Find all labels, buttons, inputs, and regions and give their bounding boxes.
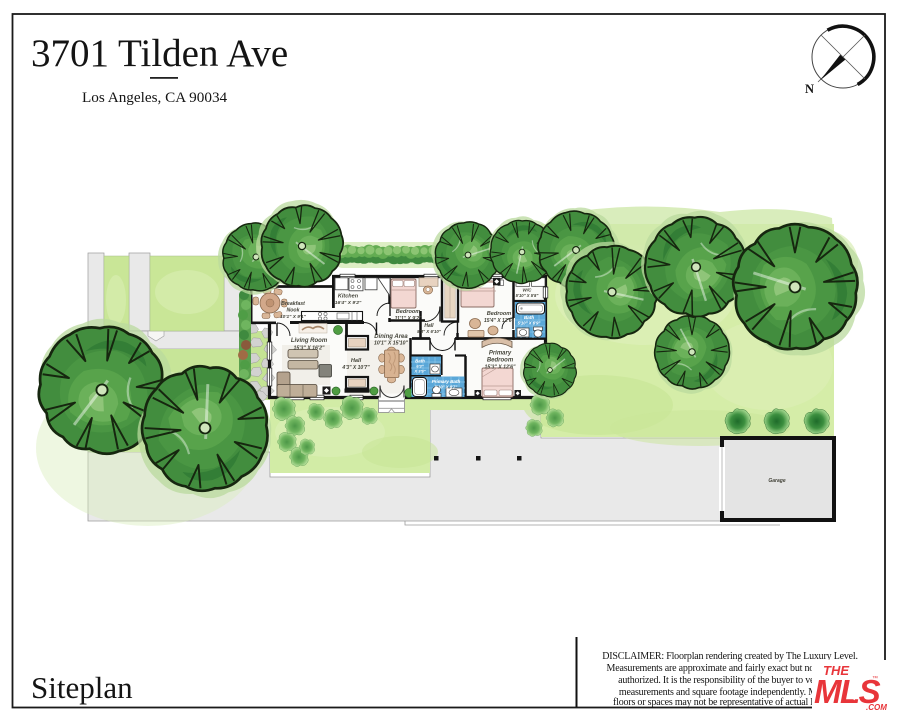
svg-text:Primary Bath: Primary Bath: [432, 379, 461, 384]
svg-text:4'3" X 10'7": 4'3" X 10'7": [341, 365, 370, 371]
svg-text:Nook: Nook: [287, 308, 301, 314]
svg-text:W/C: W/C: [523, 288, 533, 293]
svg-text:Dining Area: Dining Area: [374, 334, 408, 340]
svg-text:Living Room: Living Room: [291, 338, 328, 344]
svg-text:5'10" X 6'9": 5'10" X 6'9": [518, 321, 542, 326]
svg-text:Hall: Hall: [351, 358, 362, 364]
svg-text:™: ™: [872, 675, 878, 682]
svg-text:Primary: Primary: [489, 351, 512, 357]
svg-text:.COM: .COM: [866, 703, 887, 712]
svg-text:5'3" X 6'10": 5'3" X 6'10": [417, 329, 442, 334]
svg-text:floors or spaces may not be re: floors or spaces may not be representati…: [613, 697, 847, 708]
svg-text:Bedroom: Bedroom: [487, 311, 512, 317]
svg-text:3701 Tilden Ave: 3701 Tilden Ave: [31, 32, 288, 75]
svg-text:9'10" X 8'7": 9'10" X 8'7": [435, 385, 459, 390]
svg-text:11'1" X 9'2": 11'1" X 9'2": [395, 316, 422, 322]
svg-text:Los Angeles, CA 90034: Los Angeles, CA 90034: [82, 89, 228, 106]
svg-text:10'1" X 15'10": 10'1" X 15'10": [374, 341, 408, 347]
svg-text:Breakfast: Breakfast: [281, 301, 305, 307]
svg-text:authorized. It is the responsi: authorized. It is the responsibility of …: [618, 675, 842, 686]
svg-text:Bath: Bath: [524, 315, 534, 320]
svg-text:10'1" X 9'1": 10'1" X 9'1": [280, 314, 307, 320]
svg-text:Bedroom: Bedroom: [396, 309, 421, 315]
svg-text:15'4" X 12'6": 15'4" X 12'6": [484, 318, 515, 324]
svg-text:Kitchen: Kitchen: [338, 294, 359, 300]
svg-text:Siteplan: Siteplan: [31, 670, 133, 705]
svg-text:5'10" X 5'8": 5'10" X 5'8": [516, 293, 540, 298]
svg-text:X 3'9": X 3'9": [413, 369, 425, 374]
svg-text:Bedroom: Bedroom: [487, 358, 514, 364]
svg-text:15'3" X 12'6": 15'3" X 12'6": [484, 365, 516, 371]
svg-text:16'4" X 9'2": 16'4" X 9'2": [335, 300, 362, 306]
svg-text:15'3" X 16'2": 15'3" X 16'2": [293, 346, 325, 352]
svg-text:N: N: [805, 82, 814, 96]
svg-text:Garage: Garage: [768, 478, 785, 484]
